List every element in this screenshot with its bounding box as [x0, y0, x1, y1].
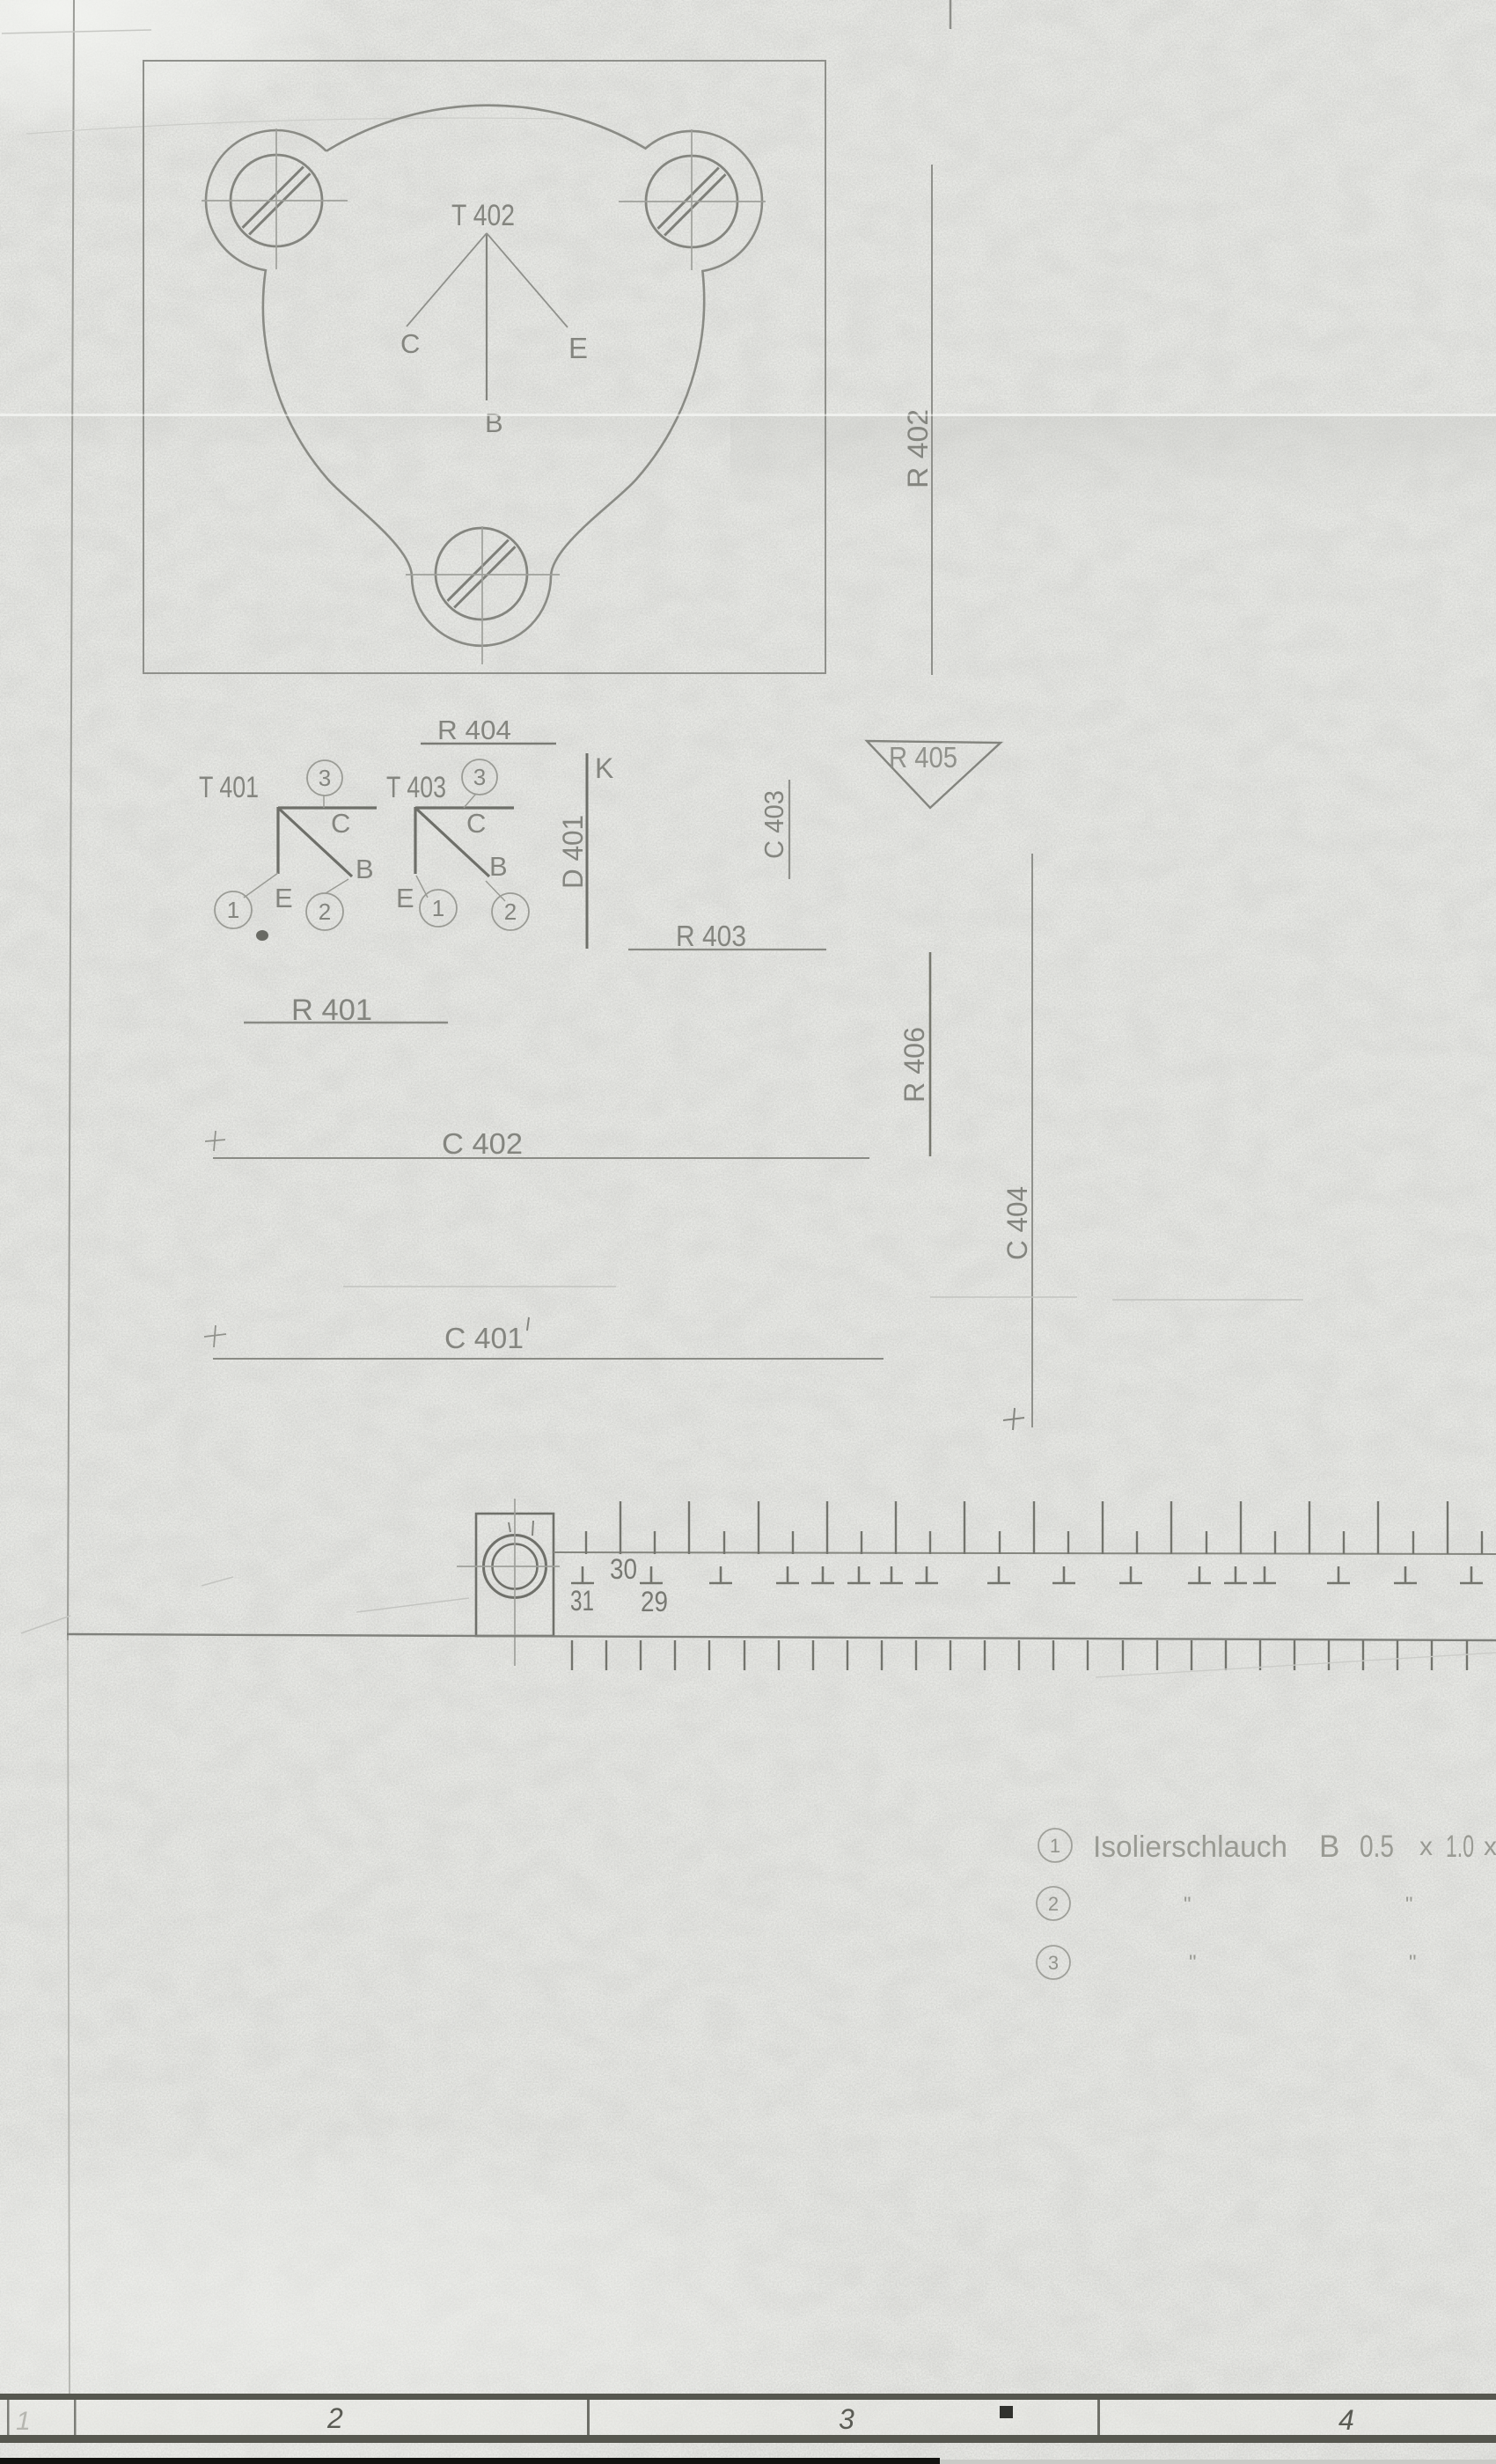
svg-text:B: B [1319, 1830, 1339, 1864]
svg-text:1: 1 [1050, 1835, 1060, 1857]
svg-text:1.0: 1.0 [1446, 1830, 1474, 1864]
svg-text:B: B [485, 407, 503, 438]
svg-text:E: E [275, 883, 293, 913]
svg-text:C 403: C 403 [759, 790, 789, 859]
svg-text:C 404: C 404 [1001, 1186, 1033, 1260]
svg-text:R 403: R 403 [676, 920, 746, 952]
svg-text:3: 3 [473, 764, 486, 790]
svg-text:1: 1 [227, 897, 239, 923]
svg-text:E: E [396, 883, 414, 913]
svg-text:": " [1189, 1951, 1197, 1975]
svg-text:29: 29 [641, 1586, 668, 1617]
svg-text:": " [1409, 1951, 1417, 1975]
svg-text:C 401: C 401 [444, 1322, 524, 1354]
svg-text:3: 3 [1048, 1952, 1059, 1974]
svg-text:0.5: 0.5 [1360, 1830, 1394, 1864]
svg-text:3: 3 [319, 765, 331, 791]
svg-text:C 402: C 402 [442, 1127, 523, 1160]
svg-text:": " [1184, 1893, 1192, 1917]
svg-text:T 401: T 401 [199, 771, 259, 804]
svg-text:R 405: R 405 [889, 741, 957, 774]
svg-text:R 402: R 402 [902, 409, 934, 488]
svg-text:D 401: D 401 [557, 815, 589, 889]
svg-text:K: K [595, 752, 613, 784]
svg-text:3: 3 [839, 2403, 854, 2435]
svg-text:T 403: T 403 [386, 771, 446, 804]
svg-text:R 404: R 404 [437, 715, 511, 745]
svg-text:31: 31 [570, 1585, 594, 1617]
svg-text:2: 2 [504, 898, 517, 925]
svg-text:x: x [1484, 1832, 1496, 1861]
svg-text:Isolierschlauch: Isolierschlauch [1093, 1830, 1287, 1864]
svg-text:x: x [1419, 1832, 1433, 1861]
svg-text:T 402: T 402 [451, 199, 515, 232]
svg-text:": " [1405, 1893, 1413, 1917]
svg-text:C: C [331, 808, 350, 839]
svg-text:B: B [489, 851, 508, 882]
svg-text:C: C [400, 328, 420, 359]
svg-text:2: 2 [1048, 1893, 1059, 1915]
svg-text:R 406: R 406 [898, 1027, 930, 1103]
svg-text:30: 30 [610, 1553, 637, 1585]
svg-text:B: B [356, 854, 374, 884]
svg-text:4: 4 [1338, 2404, 1354, 2436]
svg-text:1: 1 [432, 895, 444, 921]
svg-text:E: E [568, 332, 588, 364]
svg-text:C: C [466, 808, 486, 839]
svg-text:2: 2 [319, 898, 331, 925]
svg-text:2: 2 [326, 2402, 343, 2434]
